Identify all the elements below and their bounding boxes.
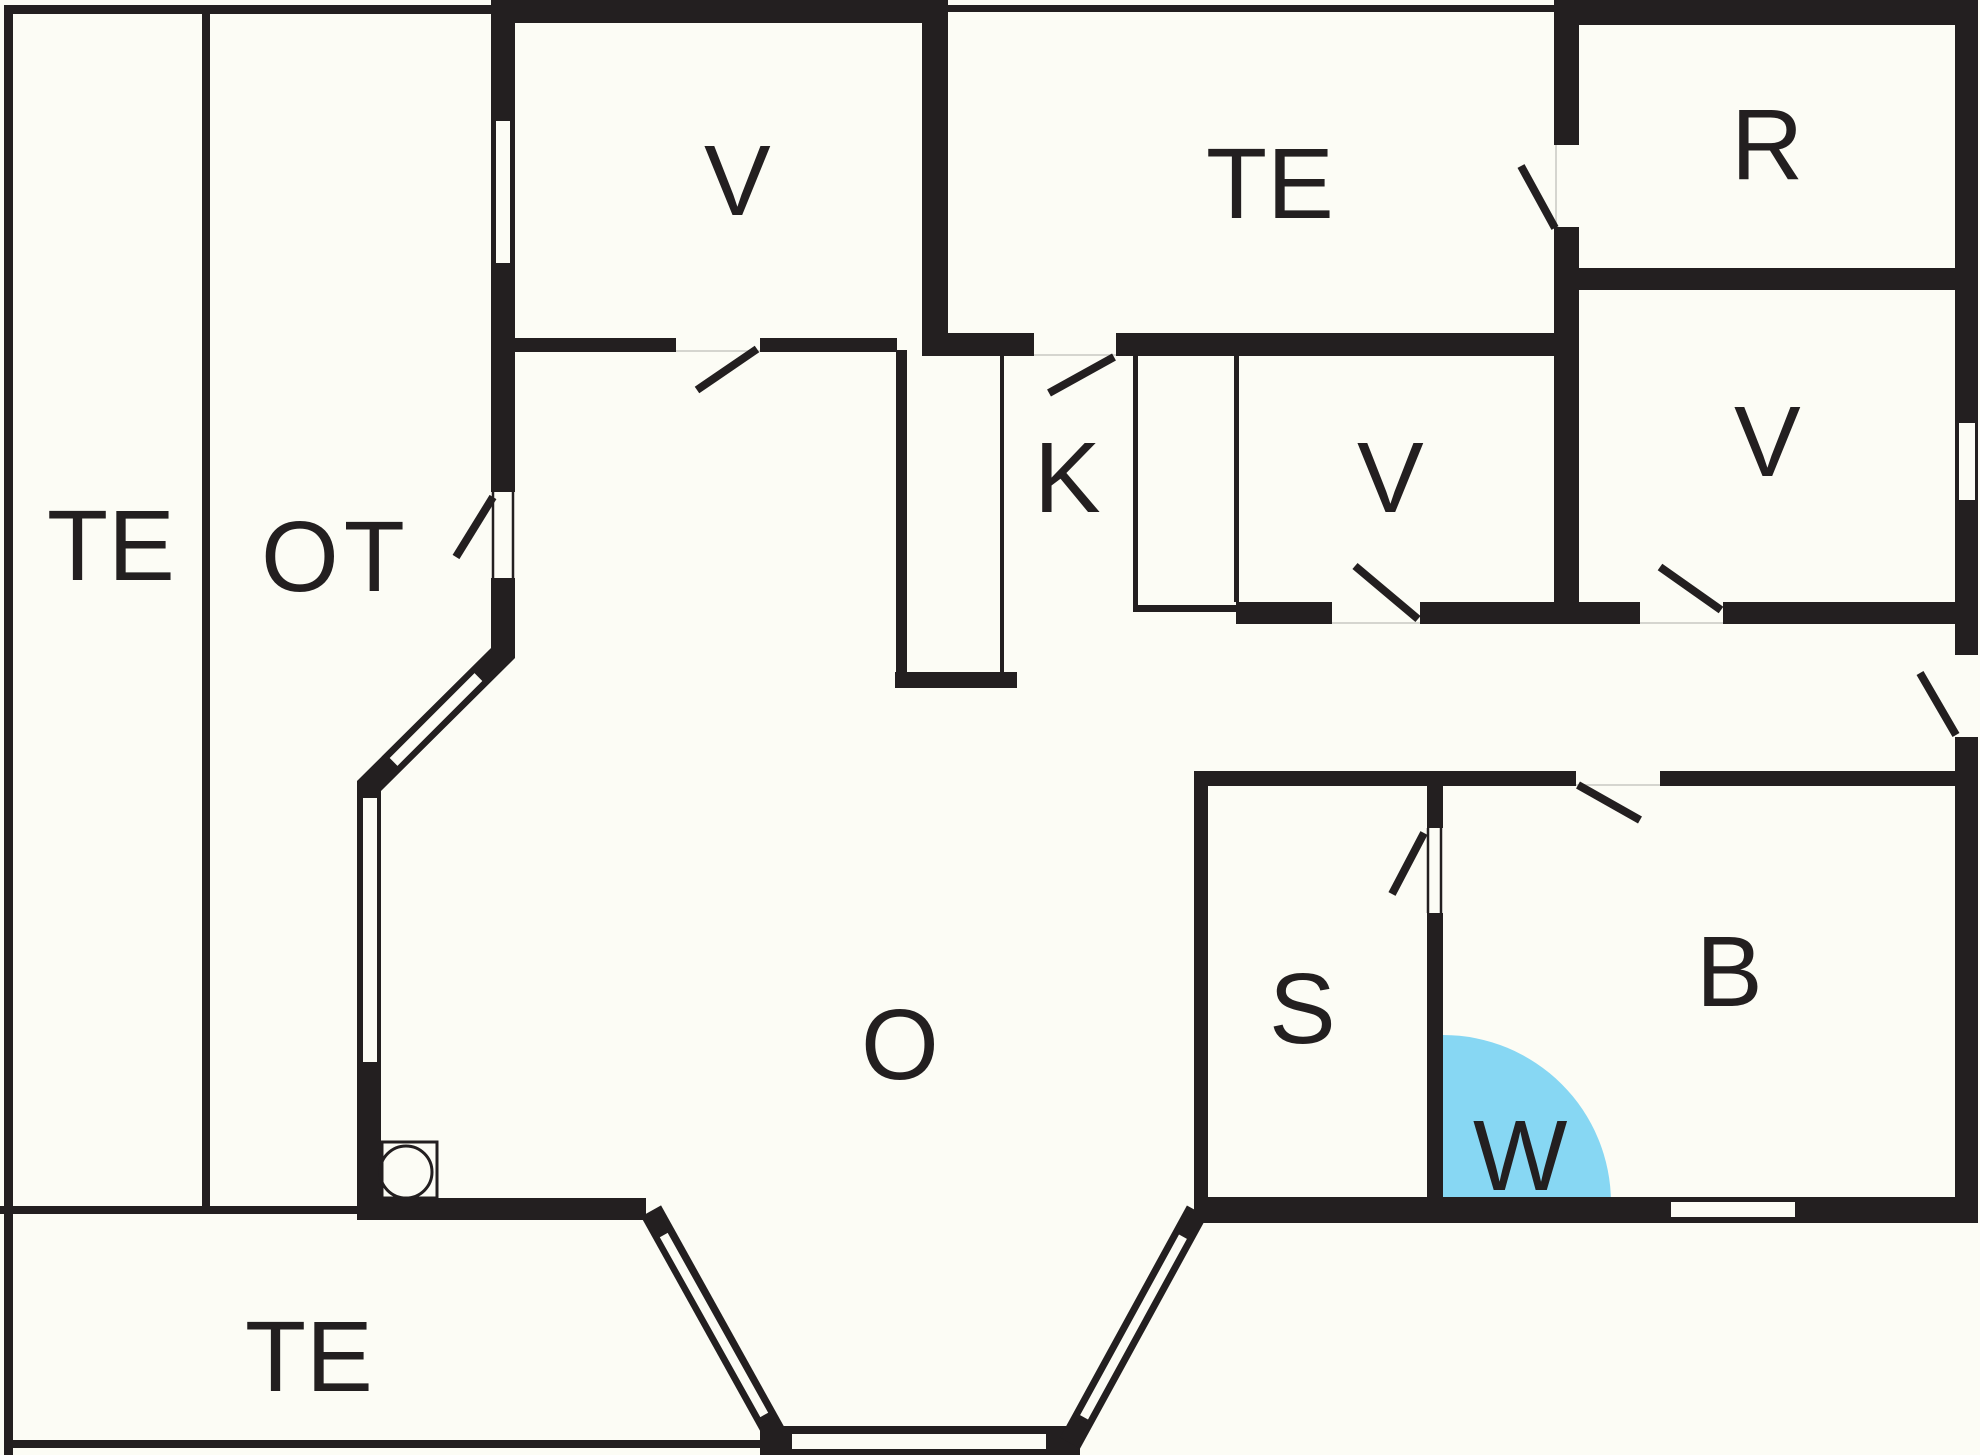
svg-text:B: B	[1696, 916, 1763, 1028]
svg-text:R: R	[1731, 89, 1803, 201]
svg-text:K: K	[1034, 422, 1101, 534]
svg-text:S: S	[1269, 953, 1336, 1065]
svg-text:TE: TE	[1206, 128, 1334, 240]
svg-text:V: V	[1734, 386, 1801, 498]
svg-text:O: O	[861, 989, 939, 1101]
svg-text:OT: OT	[261, 501, 410, 613]
svg-text:TE: TE	[245, 1301, 373, 1413]
svg-text:V: V	[1357, 422, 1424, 534]
svg-text:V: V	[704, 125, 771, 237]
svg-text:W: W	[1473, 1100, 1568, 1212]
svg-text:TE: TE	[47, 490, 175, 602]
